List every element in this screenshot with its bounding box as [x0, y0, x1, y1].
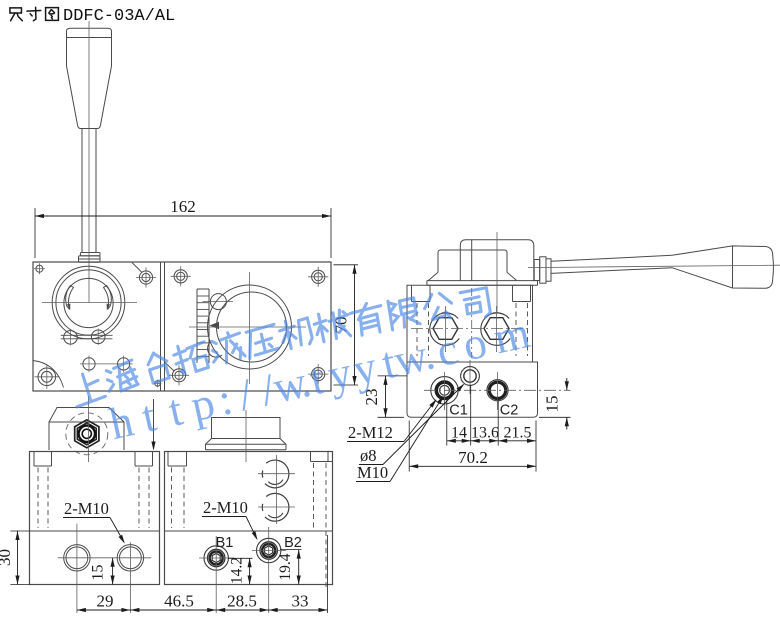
- svg-text:46.5: 46.5: [164, 592, 194, 611]
- svg-text:2-M10: 2-M10: [64, 499, 109, 518]
- svg-text:B2: B2: [284, 535, 302, 551]
- svg-text:14: 14: [451, 425, 467, 442]
- svg-text:2-M10: 2-M10: [203, 498, 248, 517]
- svg-text:C2: C2: [500, 403, 519, 419]
- svg-text:33: 33: [292, 592, 309, 611]
- svg-text:C1: C1: [449, 403, 468, 419]
- svg-text:B1: B1: [216, 535, 234, 551]
- svg-text:162: 162: [170, 197, 196, 216]
- svg-text:13.6: 13.6: [471, 425, 499, 442]
- svg-text:19.4: 19.4: [277, 553, 294, 580]
- svg-text:21.5: 21.5: [504, 425, 532, 442]
- svg-text:2-M12: 2-M12: [348, 423, 393, 442]
- svg-text:70.2: 70.2: [458, 448, 488, 467]
- svg-text:29: 29: [97, 592, 114, 611]
- svg-text:28.5: 28.5: [227, 592, 257, 611]
- svg-text:30: 30: [0, 549, 14, 566]
- svg-text:14.2: 14.2: [229, 557, 246, 584]
- svg-text:M10: M10: [357, 463, 388, 482]
- svg-text:DDFC-03A/AL: DDFC-03A/AL: [63, 7, 175, 26]
- svg-text:15: 15: [89, 565, 106, 581]
- svg-text:15: 15: [543, 396, 562, 413]
